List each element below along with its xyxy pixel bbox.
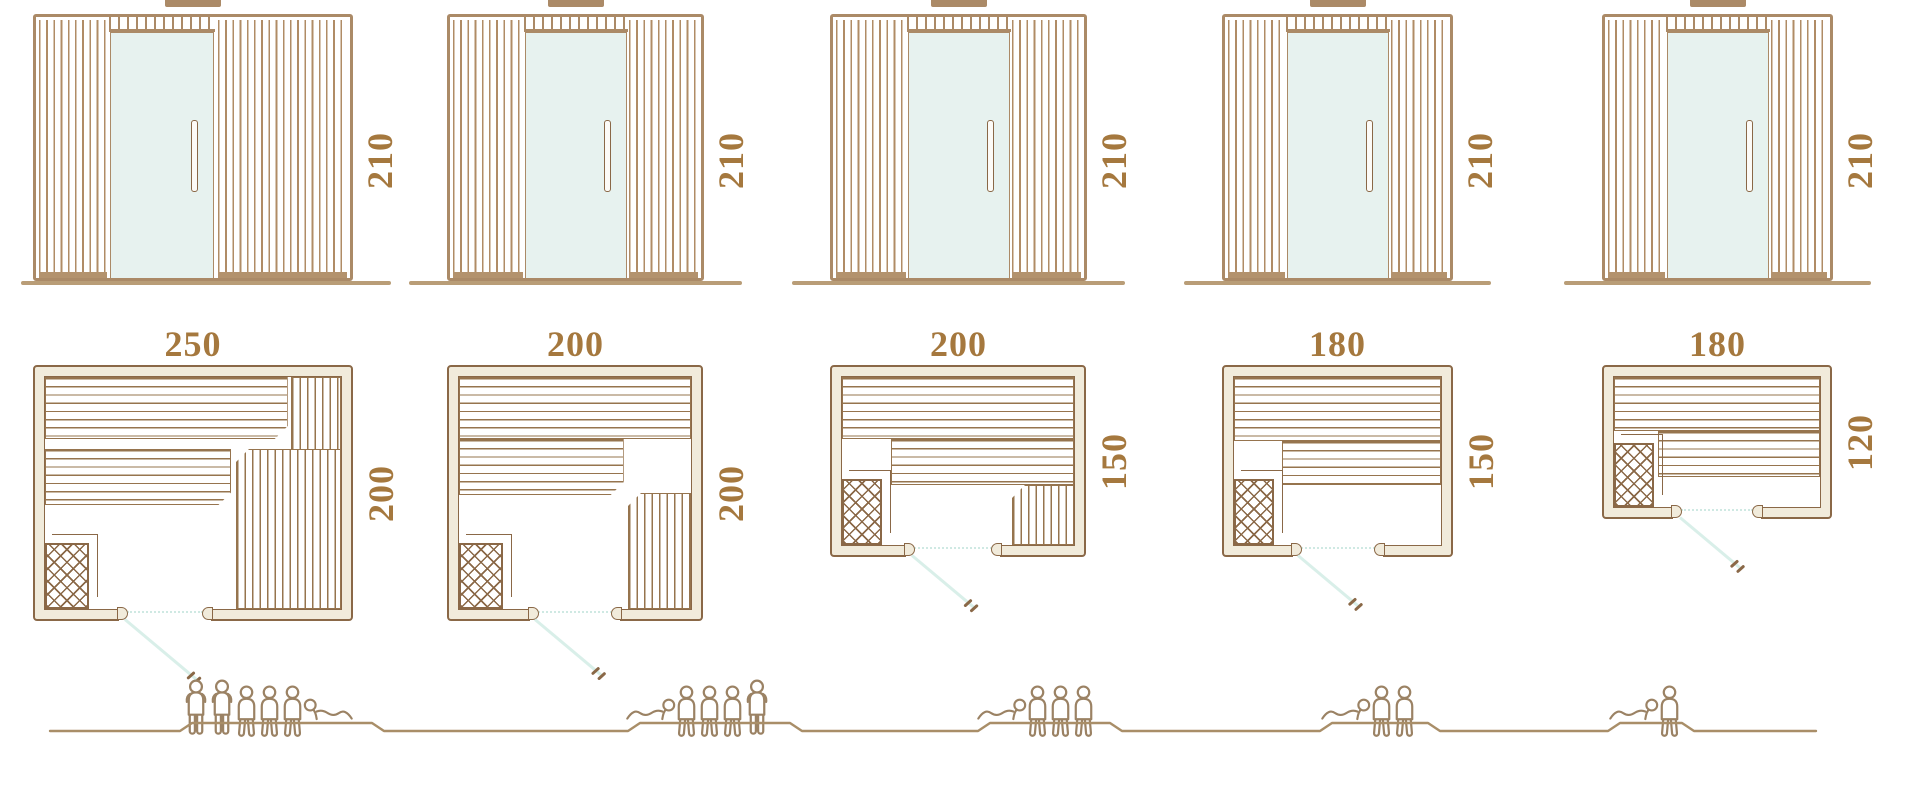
- door-handle-mark: [1354, 602, 1364, 611]
- wood-slat-panel: [39, 20, 107, 278]
- heater: [459, 543, 503, 609]
- floor-line: [1564, 281, 1871, 285]
- door-handle-mark: [1348, 597, 1358, 606]
- bench-upper: [459, 377, 691, 439]
- dimension-value: 150: [1096, 433, 1132, 490]
- sauna-front-elevation: 210: [447, 14, 704, 281]
- depth-dimension-label: 120: [1842, 367, 1878, 517]
- door-opening: [1293, 542, 1383, 557]
- door-opening: [119, 606, 211, 621]
- sauna-column: 210 200 150: [830, 0, 1087, 789]
- door-threshold-dotted-line: [1681, 509, 1753, 511]
- bench-lower: [459, 439, 624, 495]
- glass-door: [109, 17, 215, 278]
- bench-upper: [45, 377, 288, 439]
- door-handle-icon: [1366, 120, 1373, 192]
- transom-vent: [524, 17, 628, 32]
- heater: [1234, 479, 1274, 545]
- door-threshold-dotted-line: [1301, 547, 1375, 549]
- door-opening: [1673, 504, 1761, 519]
- floor-line: [792, 281, 1125, 285]
- depth-dimension-label: 150: [1096, 367, 1132, 555]
- bench-upper: [1234, 377, 1441, 441]
- roof-vent: [931, 0, 987, 7]
- door-threshold-dotted-line: [127, 611, 203, 613]
- dimension-value: 210: [713, 132, 749, 189]
- sauna-front-elevation: 210: [830, 14, 1087, 281]
- door-swing-line: [1297, 554, 1360, 608]
- wood-slat-panel: [836, 20, 906, 278]
- door-handle-mark: [591, 666, 601, 675]
- door-glass: [110, 32, 214, 278]
- wood-slat-panel: [629, 20, 699, 278]
- bench-lower: [891, 439, 1074, 485]
- wall-end-cap: [991, 543, 1002, 556]
- wood-slat-panel: [1012, 20, 1082, 278]
- door-handle-icon: [604, 120, 611, 192]
- dimension-value: 150: [1463, 433, 1499, 490]
- wall-end-cap: [1374, 543, 1385, 556]
- door-threshold-dotted-line: [914, 547, 992, 549]
- plan-interior: [1613, 376, 1821, 508]
- bench-upper: [1614, 377, 1820, 431]
- height-dimension-label: 210: [1842, 117, 1878, 203]
- bench-side-lower: [236, 449, 341, 609]
- dimension-value: 120: [1842, 414, 1878, 471]
- sauna-column: 210 200 200: [447, 0, 704, 789]
- height-dimension-label: 210: [362, 117, 398, 203]
- dimension-value: 210: [362, 132, 398, 189]
- wood-slat-panel: [1771, 20, 1828, 278]
- floor-line: [1184, 281, 1491, 285]
- glass-door: [524, 17, 628, 278]
- sauna-column: 210 180 150: [1222, 0, 1453, 789]
- depth-dimension-label: 200: [713, 367, 749, 619]
- wall-end-cap: [202, 607, 213, 620]
- heater: [1614, 443, 1654, 507]
- height-dimension-label: 210: [713, 117, 749, 203]
- transom-vent: [109, 17, 215, 32]
- depth-dimension-label: 150: [1463, 367, 1499, 555]
- door-glass: [1287, 32, 1389, 278]
- wall-end-cap: [1291, 543, 1302, 556]
- door-handle-mark: [1736, 564, 1746, 573]
- door-glass: [525, 32, 627, 278]
- sauna-front-elevation: 210: [1602, 14, 1833, 281]
- wall-end-cap: [611, 607, 622, 620]
- roof-vent: [548, 0, 604, 7]
- glass-door: [1286, 17, 1390, 278]
- sauna-floor-plan: 150: [830, 365, 1086, 557]
- door-opening: [906, 542, 1000, 557]
- dimension-value: 210: [1096, 132, 1132, 189]
- wood-slat-panel: [1228, 20, 1285, 278]
- door-handle-icon: [987, 120, 994, 192]
- bench-lower: [1658, 431, 1820, 477]
- sauna-floor-plan: 200: [447, 365, 703, 621]
- roof-vent: [1310, 0, 1366, 7]
- sauna-floor-plan: 150: [1222, 365, 1453, 557]
- glass-door: [1666, 17, 1770, 278]
- plan-interior: [44, 376, 342, 610]
- bench-lower: [1282, 441, 1441, 485]
- bench-side-lower: [1012, 485, 1074, 545]
- roof-vent: [165, 0, 221, 7]
- sauna-column: 210 250 200: [33, 0, 353, 789]
- height-dimension-label: 210: [1462, 117, 1498, 203]
- plan-interior: [841, 376, 1075, 546]
- door-glass: [1667, 32, 1769, 278]
- door-swing-line: [124, 618, 199, 681]
- ground-line: [0, 689, 1920, 749]
- transom-vent: [907, 17, 1011, 32]
- door-swing-line: [911, 554, 976, 609]
- heater: [842, 479, 882, 545]
- door-handle-mark: [970, 603, 980, 612]
- sauna-front-elevation: 210: [1222, 14, 1453, 281]
- sauna-floor-plan: 120: [1602, 365, 1832, 519]
- width-dimension-label: 180: [1222, 326, 1453, 366]
- glass-door: [907, 17, 1011, 278]
- door-swing-line: [1679, 516, 1742, 570]
- bench-side-lower: [628, 493, 691, 609]
- width-dimension-label: 200: [830, 326, 1087, 366]
- floor-line: [21, 281, 391, 285]
- depth-dimension-label: 200: [363, 367, 399, 619]
- door-handle-icon: [191, 120, 198, 192]
- wood-slat-panel: [453, 20, 523, 278]
- plan-interior: [1233, 376, 1442, 546]
- transom-vent: [1666, 17, 1770, 32]
- dimension-value: 200: [713, 465, 749, 522]
- door-handle-mark: [597, 671, 607, 680]
- width-dimension-label: 200: [447, 326, 704, 366]
- wall-end-cap: [1752, 505, 1763, 518]
- transom-vent: [1286, 17, 1390, 32]
- height-dimension-label: 210: [1096, 117, 1132, 203]
- dimension-value: 200: [363, 465, 399, 522]
- sauna-floor-plan: 200: [33, 365, 353, 621]
- sauna-column: 210 180 120: [1602, 0, 1833, 789]
- door-opening: [530, 606, 620, 621]
- bench-upper: [842, 377, 1074, 439]
- heater: [45, 543, 89, 609]
- floor-line: [409, 281, 742, 285]
- door-handle-mark: [1730, 559, 1740, 568]
- door-handle-mark: [963, 598, 973, 607]
- wall-end-cap: [528, 607, 539, 620]
- sauna-front-elevation: 210: [33, 14, 353, 281]
- wood-slat-panel: [218, 20, 347, 278]
- dimension-value: 210: [1842, 132, 1878, 189]
- dimension-value: 210: [1462, 132, 1498, 189]
- roof-vent: [1690, 0, 1746, 7]
- wood-slat-panel: [1608, 20, 1665, 278]
- width-dimension-label: 180: [1602, 326, 1833, 366]
- wood-slat-panel: [1391, 20, 1448, 278]
- width-dimension-label: 250: [33, 326, 353, 366]
- door-swing-line: [534, 618, 603, 677]
- plan-interior: [458, 376, 692, 610]
- door-glass: [908, 32, 1010, 278]
- door-handle-icon: [1746, 120, 1753, 192]
- bench-lower: [45, 449, 231, 505]
- door-threshold-dotted-line: [538, 611, 612, 613]
